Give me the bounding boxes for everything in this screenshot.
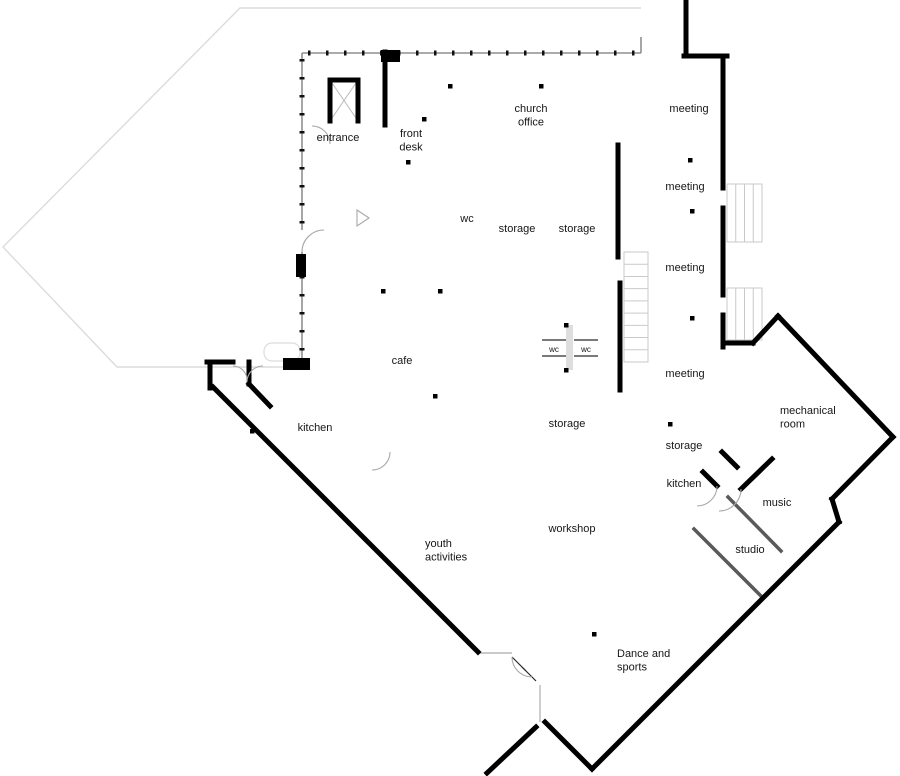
room-label-line: wc <box>459 213 474 225</box>
room-label-wc-right: wc <box>580 345 591 354</box>
interior-wall <box>668 496 700 527</box>
room-label-front-desk: frontdesk <box>399 128 423 154</box>
exterior-wall <box>832 437 893 499</box>
room-label-line: office <box>518 117 544 129</box>
exterior-wall <box>592 522 839 769</box>
room-label-line: activities <box>425 552 468 564</box>
interior-wall <box>355 457 367 469</box>
interior-wall <box>601 529 694 626</box>
layer-envelope <box>302 37 641 360</box>
partition-shading <box>566 325 573 370</box>
room-label-line: kitchen <box>298 422 333 434</box>
room-label-line: meeting <box>665 181 704 193</box>
room-label-line: cafe <box>392 355 413 367</box>
door-dot <box>433 394 438 399</box>
fixture-line <box>522 667 536 681</box>
door-dot <box>688 158 693 163</box>
room-label-line: wc <box>548 345 559 354</box>
door-dot <box>406 160 411 165</box>
floor-plan-page: entrancefrontdeskchurchofficemeetingmeet… <box>0 0 900 776</box>
room-label-line: meeting <box>665 262 704 274</box>
exterior-wall <box>753 316 778 343</box>
room-label-line: sports <box>617 662 647 674</box>
room-label-storage-2: storage <box>559 223 596 235</box>
room-label-line: meeting <box>665 368 704 380</box>
room-label-storage-mid: storage <box>549 418 586 430</box>
door-swing-arc <box>357 210 369 226</box>
room-label-line: entrance <box>317 132 360 144</box>
door-dot <box>564 368 569 373</box>
room-label-line: room <box>780 419 805 431</box>
room-label-meeting-1: meeting <box>669 103 708 115</box>
room-label-line: storage <box>559 223 596 235</box>
exterior-wall <box>722 452 737 467</box>
room-label-line: youth <box>425 538 452 550</box>
room-label-line: music <box>763 497 792 509</box>
layer-exterior <box>207 2 893 773</box>
room-label-dance-and-sports: Dance andsports <box>617 648 670 674</box>
room-label-line: workshop <box>547 523 595 535</box>
door-dot <box>690 316 695 321</box>
wall-block <box>296 254 306 277</box>
room-label-line: wc <box>580 345 591 354</box>
gray-partition-wall <box>694 529 763 598</box>
room-label-line: desk <box>399 142 423 154</box>
door-dot <box>250 429 255 434</box>
door-dot <box>690 209 695 214</box>
corridor-stair <box>624 252 648 362</box>
door-swing-arc <box>233 366 247 380</box>
room-label-storage-1: storage <box>499 223 536 235</box>
room-label-line: Dance and <box>617 648 670 660</box>
room-label-storage-right: storage <box>666 440 703 452</box>
exterior-wall <box>703 472 717 486</box>
room-label-line: front <box>400 128 422 140</box>
room-label-line: church <box>514 103 547 115</box>
interior-wall <box>540 641 585 683</box>
room-label-line: meeting <box>669 103 708 115</box>
room-label-kitchen-right: kitchen <box>667 478 702 490</box>
room-label-line: kitchen <box>667 478 702 490</box>
room-label-wc-left: wc <box>548 345 559 354</box>
room-label-line: storage <box>499 223 536 235</box>
room-label-music: music <box>763 497 792 509</box>
door-dot <box>381 289 386 294</box>
room-label-line: mechanical <box>780 405 836 417</box>
room-label-meeting-3: meeting <box>665 262 704 274</box>
exterior-wall <box>487 727 536 773</box>
room-label-entrance: entrance <box>317 132 360 144</box>
layer-door-dots <box>250 84 695 637</box>
room-label-meeting-4: meeting <box>665 368 704 380</box>
layer-interior <box>302 55 722 722</box>
floor-plan-svg: entrancefrontdeskchurchofficemeetingmeet… <box>0 0 900 776</box>
wall-block <box>381 50 400 62</box>
room-label-meeting-2: meeting <box>665 181 704 193</box>
room-label-line: storage <box>666 440 703 452</box>
door-dot <box>422 117 427 122</box>
door-dot <box>592 632 597 637</box>
room-label-mechanical-room: mechanicalroom <box>780 405 836 431</box>
room-label-cafe: cafe <box>392 355 413 367</box>
layer-faint <box>3 8 641 367</box>
curved-wall <box>647 505 670 528</box>
door-dot <box>539 84 544 89</box>
wall-block <box>283 358 310 370</box>
door-dot <box>438 289 443 294</box>
interior-wall <box>404 469 417 482</box>
room-label-kitchen-left: kitchen <box>298 422 333 434</box>
curved-wall <box>600 540 618 567</box>
roof-outline <box>3 8 641 367</box>
exterior-wall <box>741 459 772 489</box>
exterior-wall <box>249 384 270 406</box>
exterior-wall <box>213 387 478 652</box>
interior-wall <box>320 384 390 452</box>
door-dot <box>668 422 673 427</box>
curved-wall <box>513 594 590 620</box>
room-label-studio: studio <box>735 544 764 556</box>
room-label-line: studio <box>735 544 764 556</box>
door-swing-arc <box>302 230 324 252</box>
layer-fixtures <box>233 50 741 677</box>
exterior-wall <box>545 722 592 769</box>
exterior-wall <box>832 499 839 522</box>
room-label-workshop: workshop <box>547 523 595 535</box>
interior-wall <box>395 196 452 260</box>
door-dot <box>448 84 453 89</box>
room-label-wc-top: wc <box>459 213 474 225</box>
room-label-church-office: churchoffice <box>514 103 547 129</box>
door-dot <box>564 323 569 328</box>
room-label-line: storage <box>549 418 586 430</box>
room-label-youth-activities: youthactivities <box>425 538 468 564</box>
door-swing-arc <box>372 452 390 470</box>
